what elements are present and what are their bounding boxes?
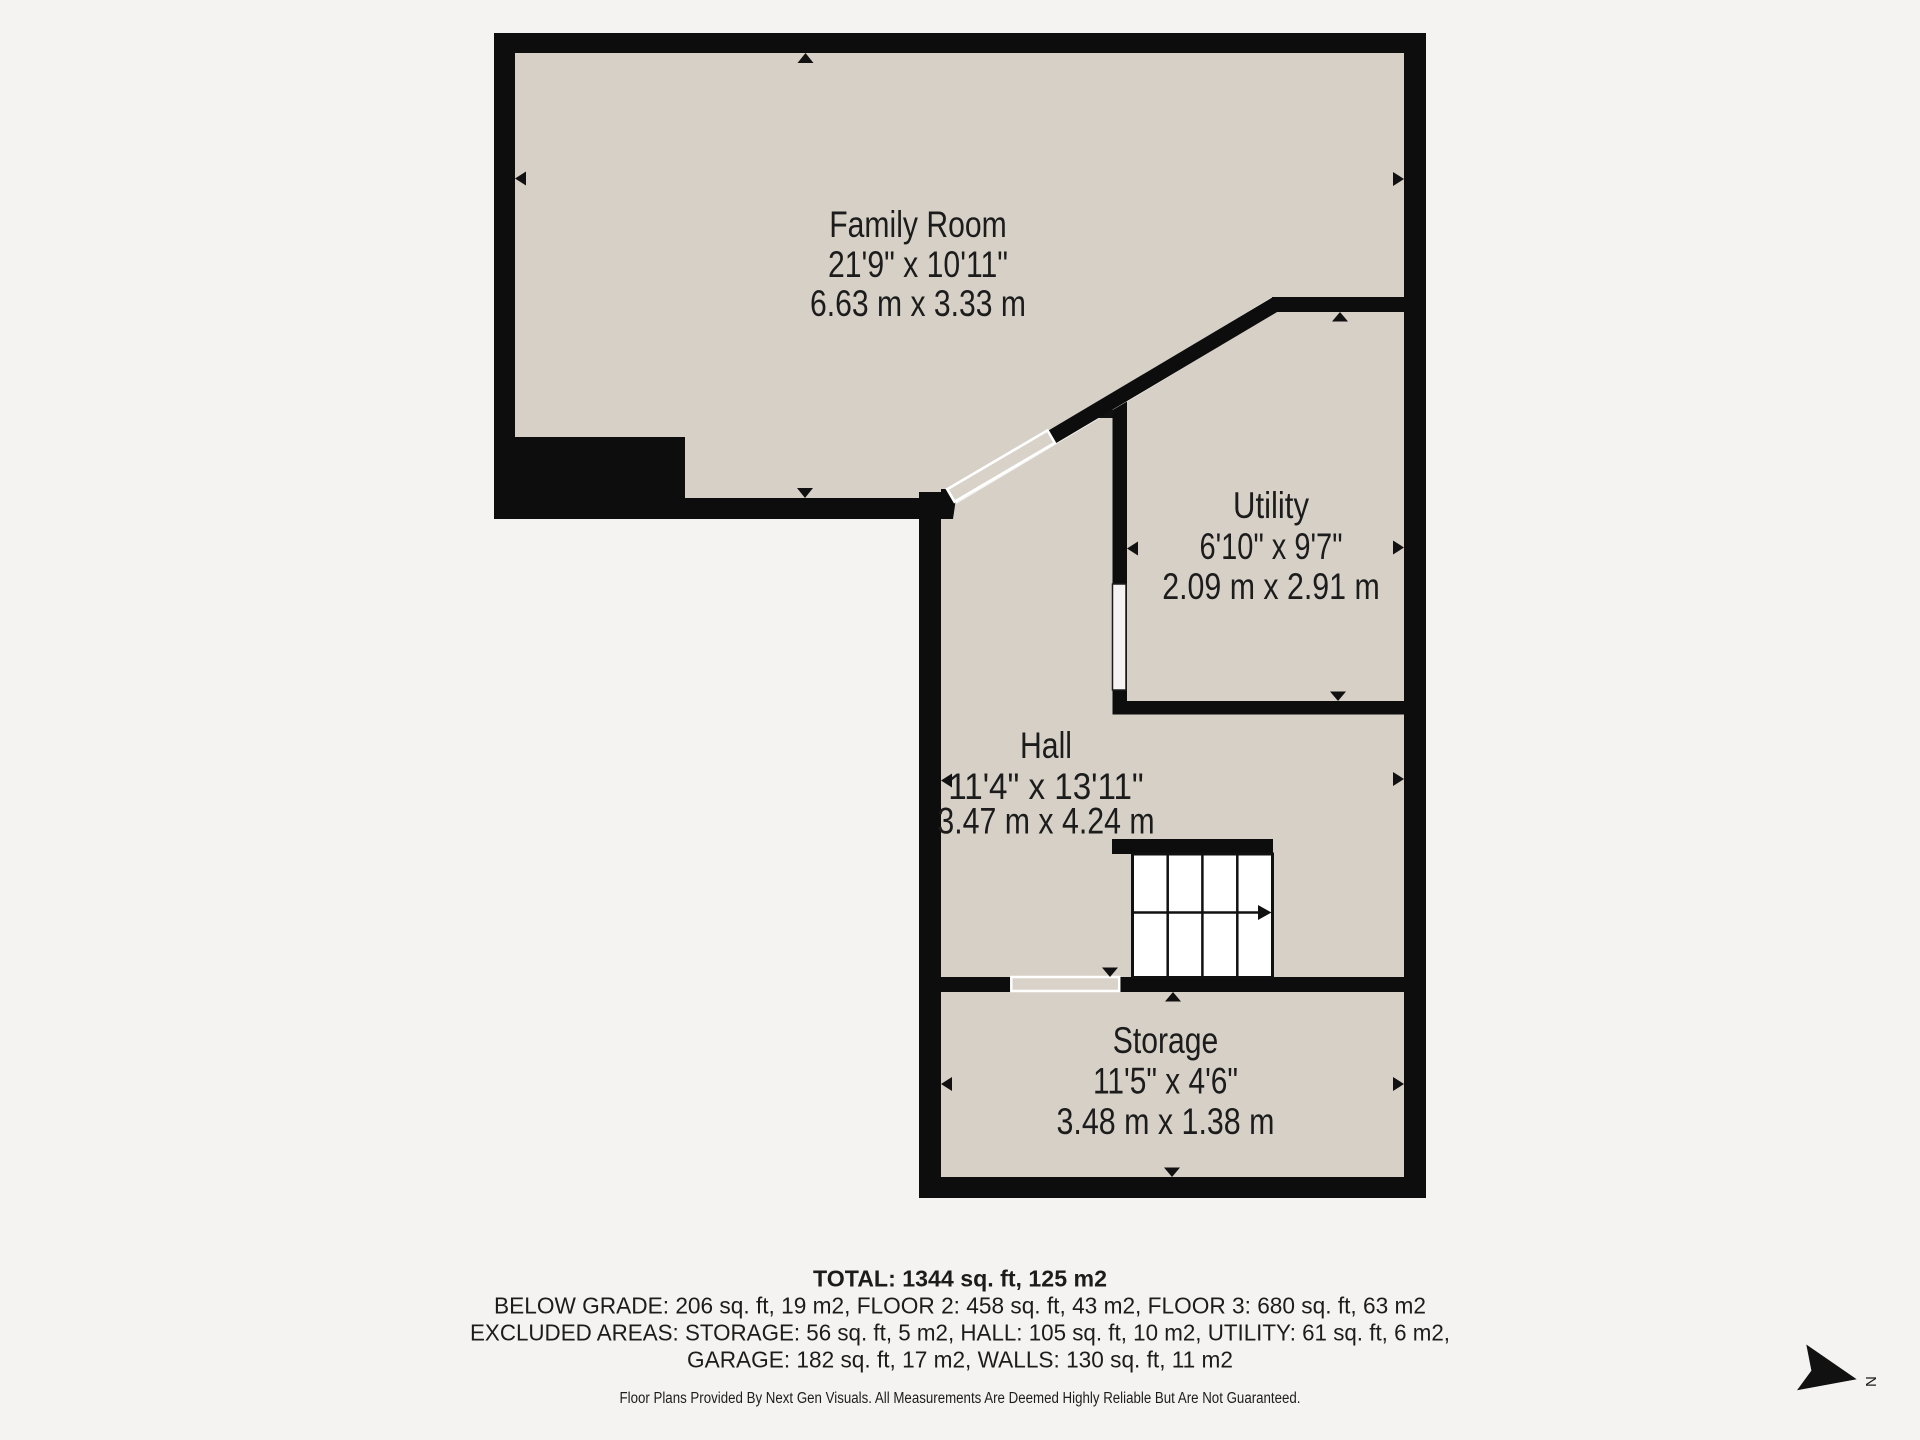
svg-text:3.48 m x 1.38 m: 3.48 m x 1.38 m xyxy=(1057,1101,1275,1142)
svg-text:Storage: Storage xyxy=(1113,1020,1219,1061)
svg-text:BELOW GRADE: 206 sq. ft, 19 m2: BELOW GRADE: 206 sq. ft, 19 m2, FLOOR 2:… xyxy=(494,1293,1426,1319)
svg-text:EXCLUDED AREAS: STORAGE: 56 sq: EXCLUDED AREAS: STORAGE: 56 sq. ft, 5 m2… xyxy=(470,1320,1450,1346)
svg-text:6.63 m x 3.33 m: 6.63 m x 3.33 m xyxy=(810,283,1026,324)
svg-text:3.47 m x 4.24 m: 3.47 m x 4.24 m xyxy=(937,801,1154,842)
svg-text:2.09 m x 2.91 m: 2.09 m x 2.91 m xyxy=(1162,566,1380,607)
svg-text:21'9" x 10'11": 21'9" x 10'11" xyxy=(828,244,1008,285)
svg-text:Utility: Utility xyxy=(1233,485,1309,526)
svg-text:Family Room: Family Room xyxy=(829,204,1007,245)
svg-text:N: N xyxy=(1862,1376,1879,1387)
svg-text:Floor Plans Provided By Next G: Floor Plans Provided By Next Gen Visuals… xyxy=(620,1390,1301,1407)
svg-text:Hall: Hall xyxy=(1020,725,1072,766)
svg-text:GARAGE: 182 sq. ft, 17 m2, WAL: GARAGE: 182 sq. ft, 17 m2, WALLS: 130 sq… xyxy=(687,1347,1233,1373)
svg-text:TOTAL: 1344 sq. ft, 125 m2: TOTAL: 1344 sq. ft, 125 m2 xyxy=(813,1266,1107,1292)
svg-text:11'5" x 4'6": 11'5" x 4'6" xyxy=(1093,1061,1238,1102)
svg-text:6'10" x 9'7": 6'10" x 9'7" xyxy=(1200,526,1343,567)
